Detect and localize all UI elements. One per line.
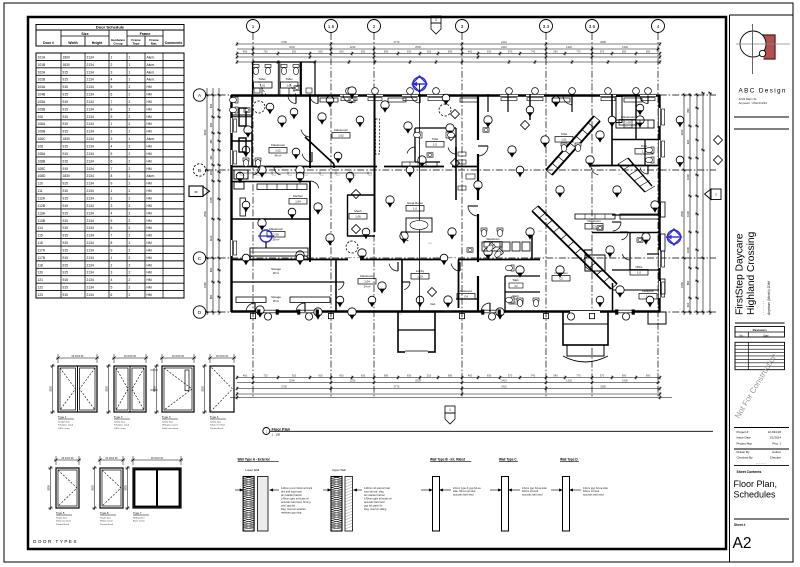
svg-text:106B: 106B: [38, 130, 47, 134]
svg-text:510: 510: [427, 49, 432, 53]
svg-text:915: 915: [63, 100, 69, 104]
svg-text:1.02: 1.02: [275, 149, 281, 153]
svg-text:HM: HM: [147, 263, 152, 267]
svg-text:915: 915: [63, 263, 69, 267]
svg-text:Toilet: Toilet: [432, 137, 438, 141]
svg-text:1900: 1900: [622, 378, 628, 382]
svg-text:1.01: 1.01: [561, 138, 567, 142]
svg-text:8: 8: [111, 174, 113, 178]
svg-text:120: 120: [38, 271, 44, 275]
svg-text:1/1/2014: 1/1/2014: [769, 436, 781, 440]
svg-text:2134: 2134: [87, 182, 95, 186]
svg-text:1830: 1830: [63, 137, 71, 141]
svg-text:Solid core flush: Solid core flush: [210, 424, 226, 427]
svg-text:3: 3: [111, 204, 113, 208]
svg-text:7: 7: [111, 167, 113, 171]
svg-text:Wall Type C: Wall Type C: [499, 458, 517, 462]
svg-text:460: 460: [468, 373, 473, 377]
svg-text:C3: C3: [592, 225, 596, 229]
svg-text:2160: 2160: [203, 129, 207, 135]
svg-text:2: 2: [129, 219, 131, 223]
svg-text:111: 111: [38, 189, 43, 193]
svg-text:1: 1: [129, 63, 131, 67]
svg-text:Toilet: Toilet: [258, 77, 265, 81]
svg-text:HM: HM: [147, 211, 152, 215]
svg-text:Sheet Contents: Sheet Contents: [737, 470, 762, 474]
svg-text:2: 2: [129, 271, 131, 275]
svg-text:0000: 0000: [202, 386, 205, 392]
svg-text:Type 4: Type 4: [210, 415, 219, 419]
svg-text:112B: 112B: [38, 204, 46, 208]
svg-text:Sheet #: Sheet #: [734, 523, 746, 527]
svg-text:1: 1: [129, 137, 131, 141]
svg-text:1.03: 1.03: [417, 275, 423, 279]
svg-text:###: ###: [304, 175, 308, 177]
svg-text:915: 915: [63, 145, 69, 149]
svg-text:690: 690: [209, 267, 213, 272]
svg-text:915: 915: [63, 130, 69, 134]
svg-text:2134: 2134: [87, 196, 95, 200]
svg-text:2: 2: [129, 100, 131, 104]
svg-text:2: 2: [129, 182, 131, 186]
svg-text:- - - - - - - -: - - - - - - - -: [761, 301, 765, 315]
svg-text:915: 915: [63, 271, 69, 275]
svg-text:915: 915: [63, 204, 69, 208]
svg-text:HM: HM: [147, 293, 152, 297]
svg-text:3: 3: [111, 271, 113, 275]
svg-text:Kitchen: Kitchen: [293, 194, 303, 198]
svg-text:Revisions: Revisions: [753, 328, 768, 332]
svg-text:2134: 2134: [87, 219, 95, 223]
svg-text:3.3: 3.3: [543, 24, 550, 29]
svg-text:690: 690: [646, 373, 651, 377]
svg-text:112A: 112A: [38, 196, 46, 200]
svg-text:acoustic batt insul: acoustic batt insul: [583, 492, 604, 496]
svg-text:1230: 1230: [350, 378, 356, 382]
svg-text:690: 690: [448, 49, 453, 53]
svg-text:915: 915: [63, 182, 69, 186]
svg-text:chnl, gyp bd: chnl, gyp bd: [281, 504, 296, 508]
svg-text:Wall Type A - Exterior: Wall Type A - Exterior: [238, 458, 271, 462]
svg-text:2: 2: [373, 24, 376, 29]
svg-text:920: 920: [292, 49, 297, 53]
svg-text:HM: HM: [147, 100, 152, 104]
svg-text:Drawn By: Drawn By: [737, 450, 751, 454]
svg-text:123: 123: [38, 293, 44, 297]
svg-text:2134: 2134: [87, 130, 95, 134]
svg-text:2: 2: [129, 293, 131, 297]
svg-text:2: 2: [129, 159, 131, 163]
svg-text:122: 122: [38, 286, 44, 290]
svg-text:920: 920: [686, 139, 690, 144]
svg-text:1: 1: [129, 78, 131, 82]
svg-text:C4: C4: [464, 295, 468, 299]
svg-text:Wall Type D: Wall Type D: [560, 458, 578, 462]
svg-text:HM: HM: [147, 256, 152, 260]
svg-text:Half glass wood: Half glass wood: [162, 425, 178, 427]
svg-text:2134: 2134: [87, 293, 95, 297]
svg-text:2700: 2700: [281, 384, 287, 388]
svg-text:600: 600: [318, 49, 323, 53]
svg-text:4: 4: [657, 24, 660, 29]
svg-text:Full glass wood: Full glass wood: [58, 425, 74, 427]
svg-text:915: 915: [63, 248, 69, 252]
svg-text:3280: 3280: [600, 40, 606, 44]
svg-text:3280: 3280: [600, 384, 606, 388]
svg-text:2160: 2160: [680, 129, 684, 135]
svg-text:1.05: 1.05: [273, 233, 279, 237]
svg-text:###: ###: [368, 175, 372, 177]
svg-text:Checker: Checker: [770, 455, 781, 459]
svg-text:460: 460: [209, 170, 213, 175]
svg-text:1800: 1800: [63, 55, 71, 59]
svg-text:102B: 102B: [38, 78, 47, 82]
svg-text:915: 915: [63, 293, 69, 297]
svg-text:Floor Plan: Floor Plan: [272, 427, 291, 431]
svg-text:630: 630: [361, 373, 366, 377]
svg-text:ABC Design: ABC Design: [739, 88, 787, 95]
svg-text:Classroom: Classroom: [360, 274, 375, 278]
svg-text:5: 5: [111, 152, 113, 156]
svg-text:Lower Wall: Lower Wall: [245, 468, 259, 472]
svg-text:106C: 106C: [38, 137, 47, 141]
svg-text:acoustic batt insul: acoustic batt insul: [364, 500, 385, 504]
svg-text:2134: 2134: [87, 286, 95, 290]
svg-text:1320: 1320: [566, 45, 572, 49]
svg-text:Double door: Double door: [58, 421, 70, 424]
svg-text:770: 770: [576, 49, 581, 53]
svg-text:1: 1: [129, 55, 131, 59]
svg-text:690: 690: [384, 49, 389, 53]
svg-text:Date: Date: [763, 334, 769, 337]
svg-text:###: ###: [538, 231, 542, 233]
svg-text:Proj. 1: Proj. 1: [772, 442, 781, 446]
svg-text:5: 5: [111, 85, 113, 89]
svg-text:1.06: 1.06: [355, 215, 361, 219]
svg-text:Great Room: Great Room: [407, 201, 424, 205]
svg-text:HM: HM: [147, 122, 152, 126]
svg-text:2134: 2134: [87, 204, 95, 208]
svg-text:Highland Crossing: Highland Crossing: [746, 231, 757, 315]
svg-text:5: 5: [111, 286, 113, 290]
svg-text:1830: 1830: [63, 63, 71, 67]
svg-text:Sliding door: Sliding door: [133, 517, 145, 520]
svg-text:Lobby: Lobby: [416, 269, 425, 273]
svg-text:2530: 2530: [680, 211, 684, 217]
svg-text:2134: 2134: [87, 256, 95, 260]
svg-text:690: 690: [448, 373, 453, 377]
svg-text:Size: Size: [81, 32, 88, 36]
svg-text:2: 2: [129, 145, 131, 149]
svg-text:2: 2: [111, 263, 113, 267]
svg-text:770: 770: [576, 373, 581, 377]
svg-text:HM: HM: [147, 219, 152, 223]
svg-text:630: 630: [361, 49, 366, 53]
svg-text:- - - - - - -: - - - - - - -: [756, 462, 767, 465]
svg-text:2134: 2134: [87, 211, 95, 215]
svg-text:6: 6: [111, 293, 113, 297]
svg-text:2134: 2134: [87, 234, 95, 238]
svg-text:###: ###: [352, 175, 356, 177]
svg-text:HM: HM: [147, 93, 152, 97]
svg-text:630: 630: [407, 49, 412, 53]
svg-text:140mm stl stud w/ batt: 140mm stl stud w/ batt: [364, 486, 390, 490]
svg-text:915: 915: [63, 196, 69, 200]
svg-text:915: 915: [63, 256, 69, 260]
svg-text:2134: 2134: [87, 271, 95, 275]
svg-text:118: 118: [38, 263, 43, 267]
svg-text:acoustic batt insul: acoustic batt insul: [453, 492, 474, 496]
svg-text:2134: 2134: [87, 100, 95, 104]
svg-text:1: 1: [449, 408, 451, 412]
svg-text:Wash.: Wash.: [513, 279, 520, 282]
svg-text:HM: HM: [147, 196, 152, 200]
svg-text:HM: HM: [147, 278, 152, 282]
svg-text:HM: HM: [147, 226, 152, 230]
svg-text:Project #: Project #: [737, 430, 749, 434]
svg-text:860: 860: [686, 280, 690, 285]
svg-text:114: 114: [38, 226, 43, 230]
svg-text:1 : 100: 1 : 100: [272, 433, 281, 437]
svg-text:890: 890: [686, 108, 690, 113]
svg-text:Door Schedule: Door Schedule: [96, 25, 125, 30]
svg-text:2: 2: [129, 234, 131, 238]
svg-text:46 m²: 46 m²: [275, 154, 282, 158]
svg-text:###: ###: [320, 175, 324, 177]
svg-text:0000: 0000: [50, 386, 53, 392]
svg-text:HM: HM: [147, 189, 152, 193]
svg-text:Classroom: Classroom: [334, 128, 349, 132]
svg-text:1120: 1120: [209, 235, 213, 241]
svg-text:108D: 108D: [38, 174, 47, 178]
svg-text:720: 720: [263, 49, 268, 53]
svg-text:3770: 3770: [394, 40, 400, 44]
svg-text:2: 2: [129, 204, 131, 208]
svg-text:12.034.00: 12.034.00: [768, 430, 782, 434]
svg-text:630: 630: [407, 373, 412, 377]
svg-text:2134: 2134: [87, 63, 95, 67]
svg-text:915: 915: [63, 167, 69, 171]
svg-text:###: ###: [256, 175, 260, 177]
svg-text:air retarder barrier: air retarder barrier: [364, 493, 385, 497]
svg-text:Solid core wood: Solid core wood: [162, 427, 178, 430]
svg-text:3: 3: [111, 70, 113, 74]
svg-text:915: 915: [63, 122, 69, 126]
svg-text:Classroom: Classroom: [269, 227, 284, 231]
svg-text:2410: 2410: [501, 40, 507, 44]
svg-text:HM: HM: [147, 167, 152, 171]
svg-text:2134: 2134: [87, 174, 95, 178]
svg-text:DOOR TYPES: DOOR TYPES: [33, 539, 78, 544]
svg-text:915: 915: [63, 78, 69, 82]
svg-text:570: 570: [508, 373, 513, 377]
svg-text:Type 5: Type 5: [56, 511, 65, 515]
svg-text:Single door: Single door: [56, 517, 67, 520]
svg-text:2: 2: [129, 85, 131, 89]
svg-text:###: ###: [618, 174, 622, 176]
svg-text:2: 2: [129, 107, 131, 111]
svg-text:570: 570: [508, 49, 513, 53]
svg-text:1: 1: [129, 174, 131, 178]
svg-text:resistant gyp shtg: resistant gyp shtg: [281, 511, 302, 515]
svg-text:740: 740: [531, 49, 536, 53]
svg-text:2134: 2134: [87, 159, 95, 163]
svg-text:HM: HM: [147, 182, 152, 186]
svg-text:Upper Wall: Upper Wall: [332, 468, 346, 472]
svg-text:insul air bar, shtg: insul air bar, shtg: [364, 490, 384, 494]
svg-text:Toilet: Toilet: [285, 77, 292, 81]
svg-text:105A: 105A: [38, 100, 47, 104]
svg-text:106A: 106A: [38, 122, 47, 126]
svg-text:Comments: Comments: [165, 41, 183, 45]
svg-text:A2: A2: [733, 535, 752, 552]
svg-text:air retarder barrier: air retarder barrier: [281, 493, 302, 497]
svg-text:1320: 1320: [566, 378, 572, 382]
svg-text:2: 2: [111, 130, 113, 134]
svg-text:Door #: Door #: [43, 41, 54, 45]
svg-text:540: 540: [553, 49, 558, 53]
svg-text:2134: 2134: [87, 122, 95, 126]
svg-text:Alum.: Alum.: [147, 78, 156, 82]
svg-text:Not For Construction: Not For Construction: [733, 352, 779, 420]
svg-text:Washroom: Washroom: [487, 237, 501, 241]
svg-text:HM: HM: [147, 204, 152, 208]
svg-text:HM: HM: [147, 145, 152, 149]
svg-text:Classroom: Classroom: [621, 115, 636, 119]
svg-text:600: 600: [339, 49, 344, 53]
svg-text:Project Mgr: Project Mgr: [737, 442, 752, 446]
svg-text:690: 690: [646, 49, 651, 53]
svg-text:2530: 2530: [415, 378, 421, 382]
svg-text:116: 116: [38, 241, 43, 245]
svg-text:acoustic batt insul, furring: acoustic batt insul, furring: [281, 500, 311, 504]
svg-text:915: 915: [63, 278, 69, 282]
svg-text:915: 915: [63, 152, 69, 156]
svg-text:100% vision: 100% vision: [114, 428, 127, 430]
svg-text:2: 2: [129, 286, 131, 290]
svg-text:2134: 2134: [87, 248, 95, 252]
svg-text:0000: 0000: [106, 386, 109, 392]
svg-text:2: 2: [129, 256, 131, 260]
svg-text:HM: HM: [147, 85, 152, 89]
svg-text:Alum.: Alum.: [147, 55, 156, 59]
svg-text:Frame: Frame: [140, 32, 151, 36]
svg-text:2410: 2410: [501, 45, 507, 49]
svg-text:915: 915: [63, 85, 69, 89]
svg-text:1.0: 1.0: [413, 207, 417, 211]
svg-text:4: 4: [111, 278, 113, 282]
svg-text:9: 9: [111, 115, 113, 119]
svg-text:## 0000 ##: ## 0000 ##: [172, 355, 185, 358]
svg-text:460: 460: [243, 373, 248, 377]
svg-text:## 0000 ##: ## 0000 ##: [106, 457, 119, 460]
svg-text:915: 915: [63, 70, 69, 74]
svg-text:2134: 2134: [87, 189, 95, 193]
svg-text:140mm galv stl studs w/: 140mm galv stl studs w/: [281, 497, 309, 501]
svg-text:gyp bd, paint fin: gyp bd, paint fin: [364, 504, 383, 508]
svg-text:2134: 2134: [87, 78, 95, 82]
svg-text:Alum.: Alum.: [147, 174, 156, 178]
svg-text:1: 1: [111, 256, 113, 260]
svg-text:460: 460: [209, 122, 213, 127]
svg-text:2134: 2134: [87, 152, 95, 156]
svg-text:ties and rigid insul: ties and rigid insul: [281, 490, 302, 494]
svg-text:## 0000 ##: ## 0000 ##: [62, 457, 75, 460]
svg-text:104B: 104B: [38, 93, 47, 97]
svg-text:915: 915: [63, 226, 69, 230]
svg-text:HM: HM: [147, 115, 152, 119]
svg-text:## 0000 ##: ## 0000 ##: [72, 355, 85, 358]
svg-text:Height: Height: [92, 41, 103, 45]
svg-text:2134: 2134: [87, 145, 95, 149]
svg-text:108: 108: [38, 145, 44, 149]
svg-text:2530: 2530: [415, 45, 421, 49]
svg-text:Hollow metal: Hollow metal: [100, 520, 113, 523]
svg-text:6: 6: [111, 226, 113, 230]
svg-text:106: 106: [38, 115, 44, 119]
svg-text:690: 690: [622, 49, 627, 53]
svg-text:###: ###: [336, 175, 340, 177]
svg-text:## 0000 ##: ## 0000 ##: [124, 355, 137, 358]
svg-text:2240: 2240: [289, 378, 295, 382]
svg-text:2: 2: [129, 167, 131, 171]
svg-text:2134: 2134: [87, 278, 95, 282]
svg-text:Single door: Single door: [210, 421, 221, 424]
svg-text:Group: Group: [113, 42, 122, 46]
svg-text:108A: 108A: [38, 152, 47, 156]
svg-text:9: 9: [111, 248, 113, 252]
svg-text:2: 2: [129, 241, 131, 245]
svg-text:28 m²: 28 m²: [273, 238, 280, 242]
svg-text:915: 915: [63, 93, 69, 97]
svg-text:1.04: 1.04: [364, 280, 370, 284]
svg-text:1: 1: [252, 24, 255, 29]
svg-text:4: 4: [111, 211, 113, 215]
svg-text:24 m²: 24 m²: [364, 285, 371, 289]
svg-text:## m²: ## m²: [273, 300, 279, 303]
svg-text:915: 915: [63, 189, 69, 193]
svg-text:3770: 3770: [394, 384, 400, 388]
svg-text:8: 8: [111, 241, 113, 245]
svg-text:108B: 108B: [38, 159, 47, 163]
svg-text:2134: 2134: [87, 115, 95, 119]
svg-text:B: B: [198, 168, 201, 173]
svg-text:HM: HM: [147, 234, 152, 238]
svg-text:2: 2: [129, 130, 131, 134]
svg-text:Wall Type B - Int. Rated: Wall Type B - Int. Rated: [430, 458, 465, 462]
svg-text:Reception: Reception: [642, 289, 654, 293]
svg-text:140mm galv stl studs w/: 140mm galv stl studs w/: [364, 497, 392, 501]
svg-text:115: 115: [38, 234, 43, 238]
svg-text:690: 690: [622, 373, 627, 377]
svg-text:400: 400: [686, 302, 690, 307]
svg-text:Width: Width: [68, 41, 77, 45]
svg-text:Author: Author: [772, 450, 781, 454]
svg-text:0000: 0000: [48, 485, 51, 491]
svg-text:HM: HM: [147, 152, 152, 156]
svg-text:Floor Plan,: Floor Plan,: [734, 479, 778, 489]
svg-text:7: 7: [111, 234, 113, 238]
svg-text:105B: 105B: [38, 107, 47, 111]
svg-text:1.0: 1.0: [637, 271, 641, 275]
svg-text:1.08: 1.08: [625, 121, 631, 125]
svg-text:HM: HM: [147, 286, 152, 290]
svg-text:3.6: 3.6: [589, 24, 596, 29]
svg-text:8: 8: [111, 107, 113, 111]
svg-text:1230: 1230: [350, 45, 356, 49]
svg-text:HM: HM: [147, 130, 152, 134]
svg-text:430: 430: [209, 155, 213, 160]
